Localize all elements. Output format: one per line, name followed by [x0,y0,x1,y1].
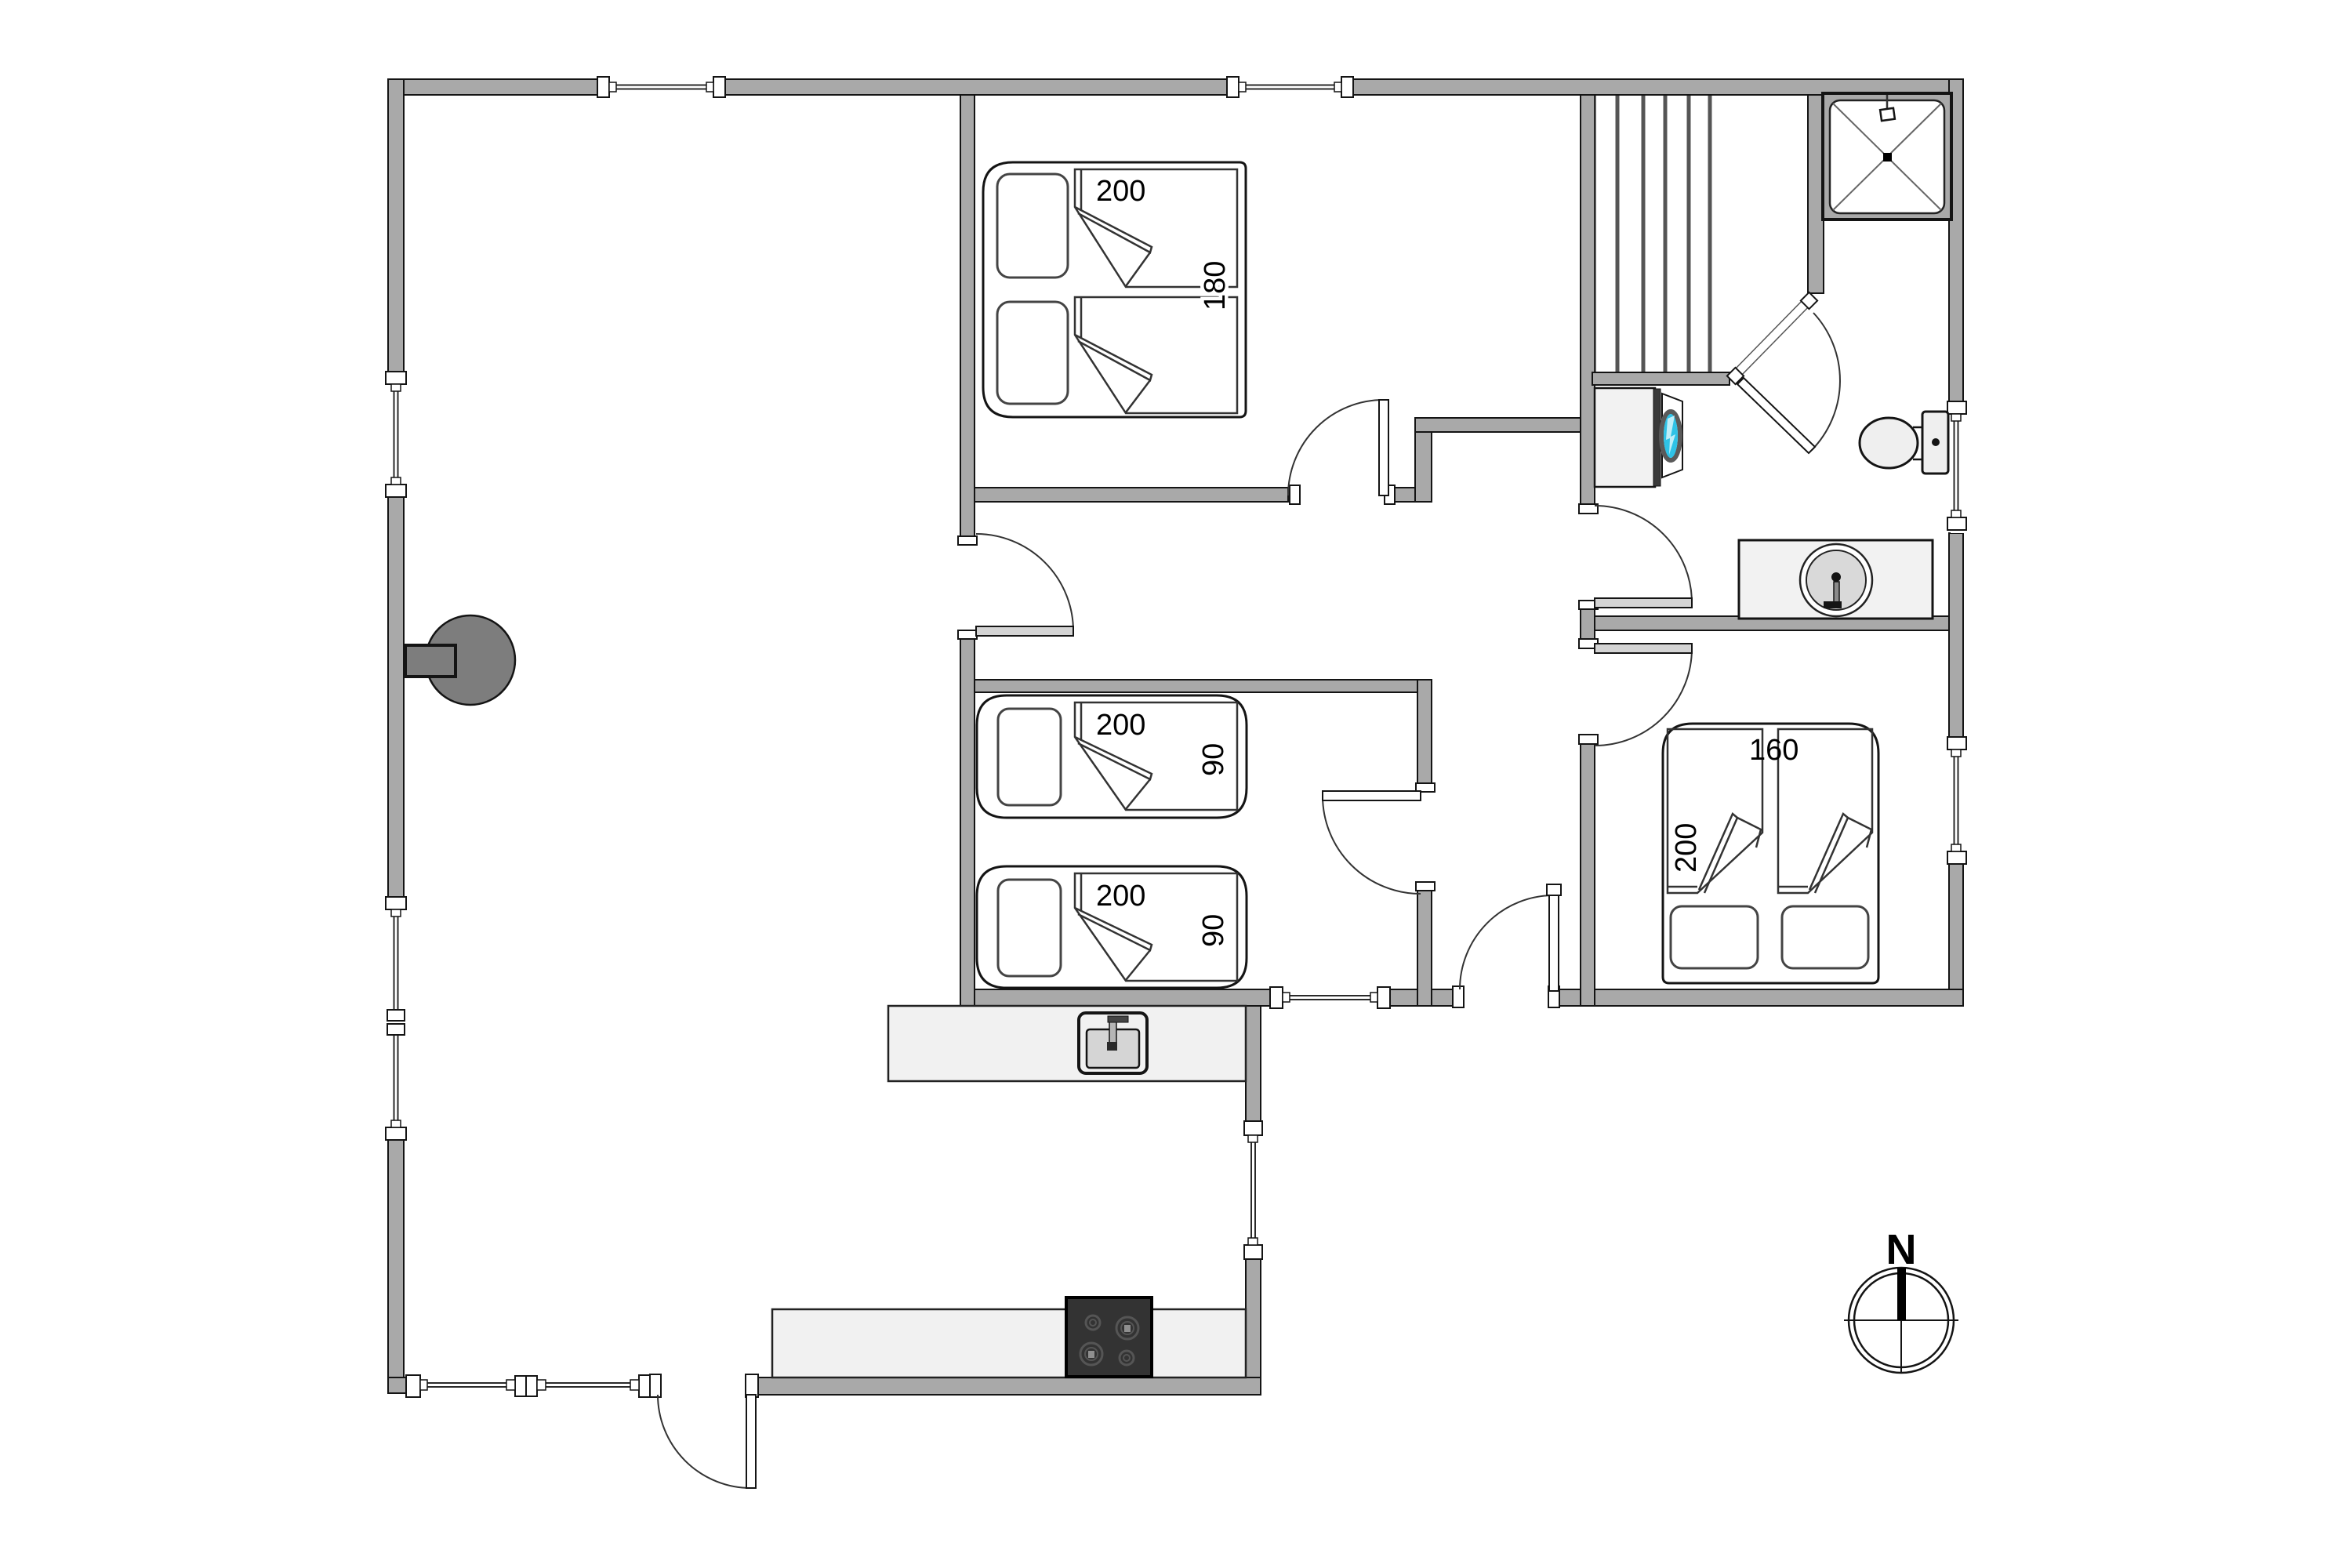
svg-text:90: 90 [1197,743,1230,776]
svg-text:180: 180 [1199,261,1232,310]
svg-text:200: 200 [1096,709,1145,742]
svg-text:200: 200 [1670,823,1703,873]
svg-text:N: N [1886,1226,1917,1273]
svg-text:160: 160 [1749,734,1798,767]
svg-text:200: 200 [1096,175,1145,208]
svg-text:200: 200 [1096,880,1145,913]
svg-text:90: 90 [1197,914,1230,947]
